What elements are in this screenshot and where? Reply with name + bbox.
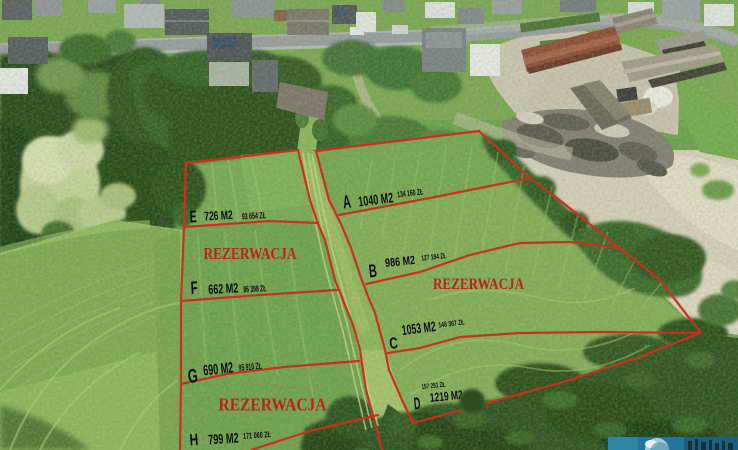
svg-text:REZERWACJA: REZERWACJA: [219, 395, 327, 415]
svg-text:662 M2: 662 M2: [208, 280, 239, 297]
svg-text:799 M2: 799 M2: [208, 429, 240, 447]
svg-text:REZERWACJA: REZERWACJA: [433, 276, 524, 293]
svg-text:726 M2: 726 M2: [204, 208, 233, 223]
svg-text:F: F: [190, 278, 198, 298]
svg-text:171 060 ZŁ: 171 060 ZŁ: [243, 429, 272, 441]
svg-text:H: H: [189, 431, 199, 450]
svg-text:REZERWACJA: REZERWACJA: [204, 244, 297, 263]
svg-text:690 M2: 690 M2: [202, 359, 234, 379]
svg-text:86 398 ZŁ: 86 398 ZŁ: [243, 283, 267, 294]
svg-text:E: E: [189, 207, 197, 226]
svg-text:93 654 ZŁ: 93 654 ZŁ: [242, 210, 267, 221]
